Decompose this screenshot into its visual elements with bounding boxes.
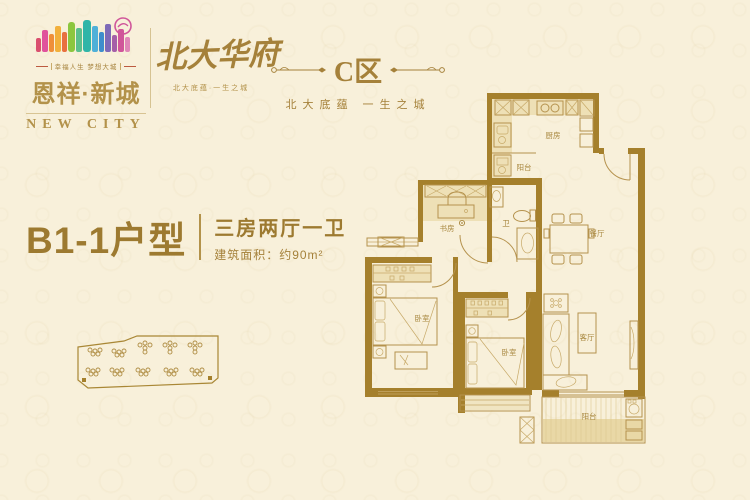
room-label-balcony: 阳台 — [582, 411, 597, 421]
tagline-dash-icon — [36, 66, 48, 67]
study-fixtures — [425, 185, 488, 263]
brand-name-en: NEW CITY — [26, 113, 146, 133]
bathroom-fixtures — [490, 187, 538, 262]
side-table-icon — [544, 294, 568, 312]
nightstand-icon — [373, 346, 386, 358]
bath-door-arc — [492, 237, 517, 262]
zone-label: C区 — [334, 50, 382, 90]
floorplan-drawing: 厨房 阳台 书房 卫 餐厅 卧室 卧室 客厅 阳台 — [340, 85, 667, 465]
project-name: 北大华府 — [154, 28, 268, 77]
unit-rooms: 三房两厅一卫 — [214, 212, 346, 241]
left-window — [367, 237, 418, 247]
sofa-icon — [543, 314, 569, 375]
ac-shaft-icon — [520, 417, 534, 443]
project-block: 北大华府 北大底蕴·一生之城 — [155, 30, 267, 93]
tagline-bar-icon — [51, 63, 52, 70]
brand-tagline-row: 幸福人生 梦想大城 — [26, 61, 146, 71]
entry-door — [604, 154, 630, 180]
unit-divider — [199, 214, 201, 260]
site-plan — [68, 328, 230, 394]
bedroom-left-door-arc — [432, 263, 456, 287]
unit-area: 建筑面积：约90m² — [214, 246, 346, 263]
flourish-right-icon — [388, 62, 446, 78]
unit-name: B1-1户型 — [26, 210, 186, 264]
brand-tagline: 幸福人生 梦想大城 — [55, 61, 118, 71]
room-label-living: 客厅 — [580, 332, 595, 342]
floorplan-poster: { "brand": { "name": "恩祥·新城", "name_en":… — [0, 0, 750, 500]
hall-door-arc — [460, 235, 488, 263]
tv-icon — [631, 327, 634, 359]
brand-logo-block: 幸福人生 梦想大城 恩祥·新城 NEW CITY — [26, 14, 146, 133]
nightstand-icon — [466, 325, 478, 337]
dining-table-icon — [550, 225, 588, 253]
room-label-study: 书房 — [440, 223, 455, 233]
room-label-bathroom: 卫 — [502, 219, 510, 228]
room-label-service-balcony: 阳台 — [517, 162, 532, 172]
toilet-icon — [514, 211, 531, 222]
room-label-bedroom-left: 卧室 — [415, 313, 430, 323]
dining-fixtures — [544, 214, 594, 264]
tagline-bar-icon — [120, 63, 121, 70]
brand-name: 恩祥·新城 — [26, 74, 146, 109]
unit-info-block: B1-1户型 三房两厅一卫 建筑面积：约90m² — [26, 210, 346, 264]
bed-icon — [466, 338, 524, 388]
project-tagline: 北大底蕴·一生之城 — [155, 83, 267, 93]
bedroom-left-fixtures — [373, 263, 456, 394]
tagline-dash-icon — [124, 66, 136, 67]
living-fixtures — [543, 294, 638, 390]
room-label-bedroom-middle: 卧室 — [502, 347, 517, 357]
city-skyline-icon — [34, 14, 138, 54]
bench-icon — [395, 352, 427, 369]
header-divider — [150, 28, 151, 108]
nightstand-icon — [373, 285, 386, 297]
flourish-left-icon — [270, 62, 328, 78]
room-label-kitchen: 厨房 — [546, 130, 561, 140]
room-label-dining: 餐厅 — [590, 229, 605, 238]
